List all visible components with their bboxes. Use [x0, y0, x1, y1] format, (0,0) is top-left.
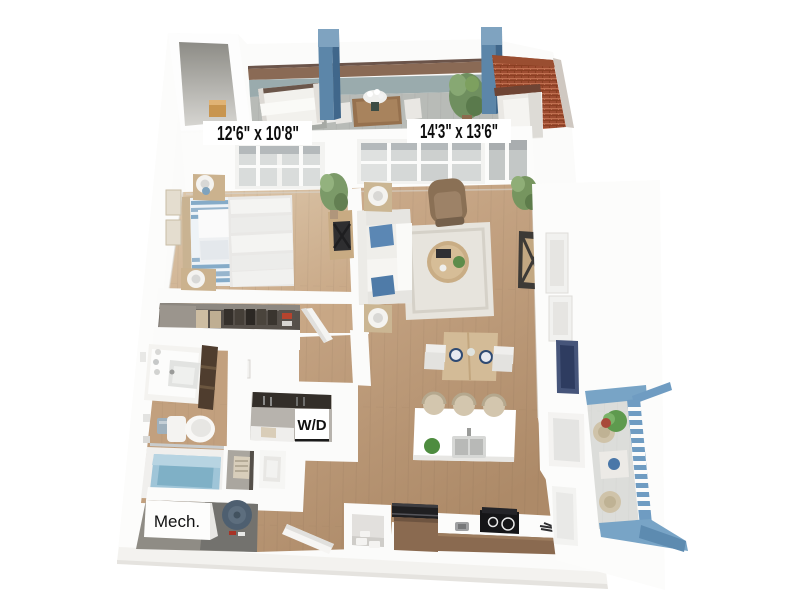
svg-text:14'3" x 13'6": 14'3" x 13'6": [420, 121, 498, 143]
svg-text:Mech.: Mech.: [154, 512, 200, 531]
svg-text:W/D: W/D: [297, 417, 326, 434]
svg-text:12'6" x 10'8": 12'6" x 10'8": [217, 123, 299, 145]
